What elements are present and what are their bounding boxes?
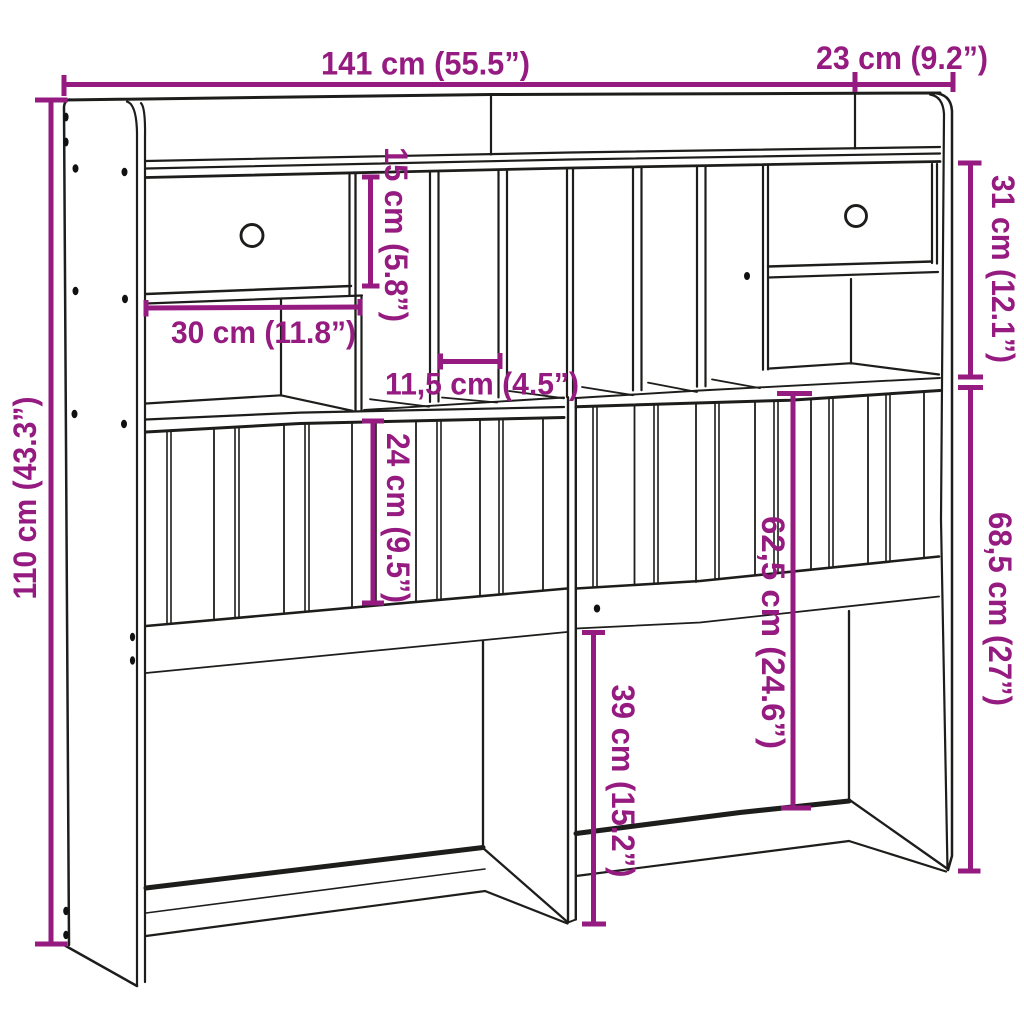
- svg-text:68,5 cm (27”): 68,5 cm (27”): [982, 512, 1018, 706]
- svg-text:110 cm (43.3”): 110 cm (43.3”): [7, 397, 43, 600]
- svg-text:23 cm (9.2”): 23 cm (9.2”): [816, 40, 988, 76]
- svg-text:39 cm (15.2”): 39 cm (15.2”): [605, 685, 641, 878]
- svg-text:31 cm (12.1”): 31 cm (12.1”): [985, 175, 1021, 363]
- svg-text:62,5 cm (24.6”): 62,5 cm (24.6”): [755, 516, 791, 749]
- svg-text:11,5 cm (4.5”): 11,5 cm (4.5”): [385, 366, 579, 402]
- svg-text:30 cm (11.8”): 30 cm (11.8”): [171, 314, 356, 350]
- svg-text:24 cm (9.5”): 24 cm (9.5”): [380, 433, 416, 603]
- svg-text:141 cm (55.5”): 141 cm (55.5”): [321, 46, 530, 82]
- svg-text:15 cm (5.8”): 15 cm (5.8”): [378, 147, 414, 322]
